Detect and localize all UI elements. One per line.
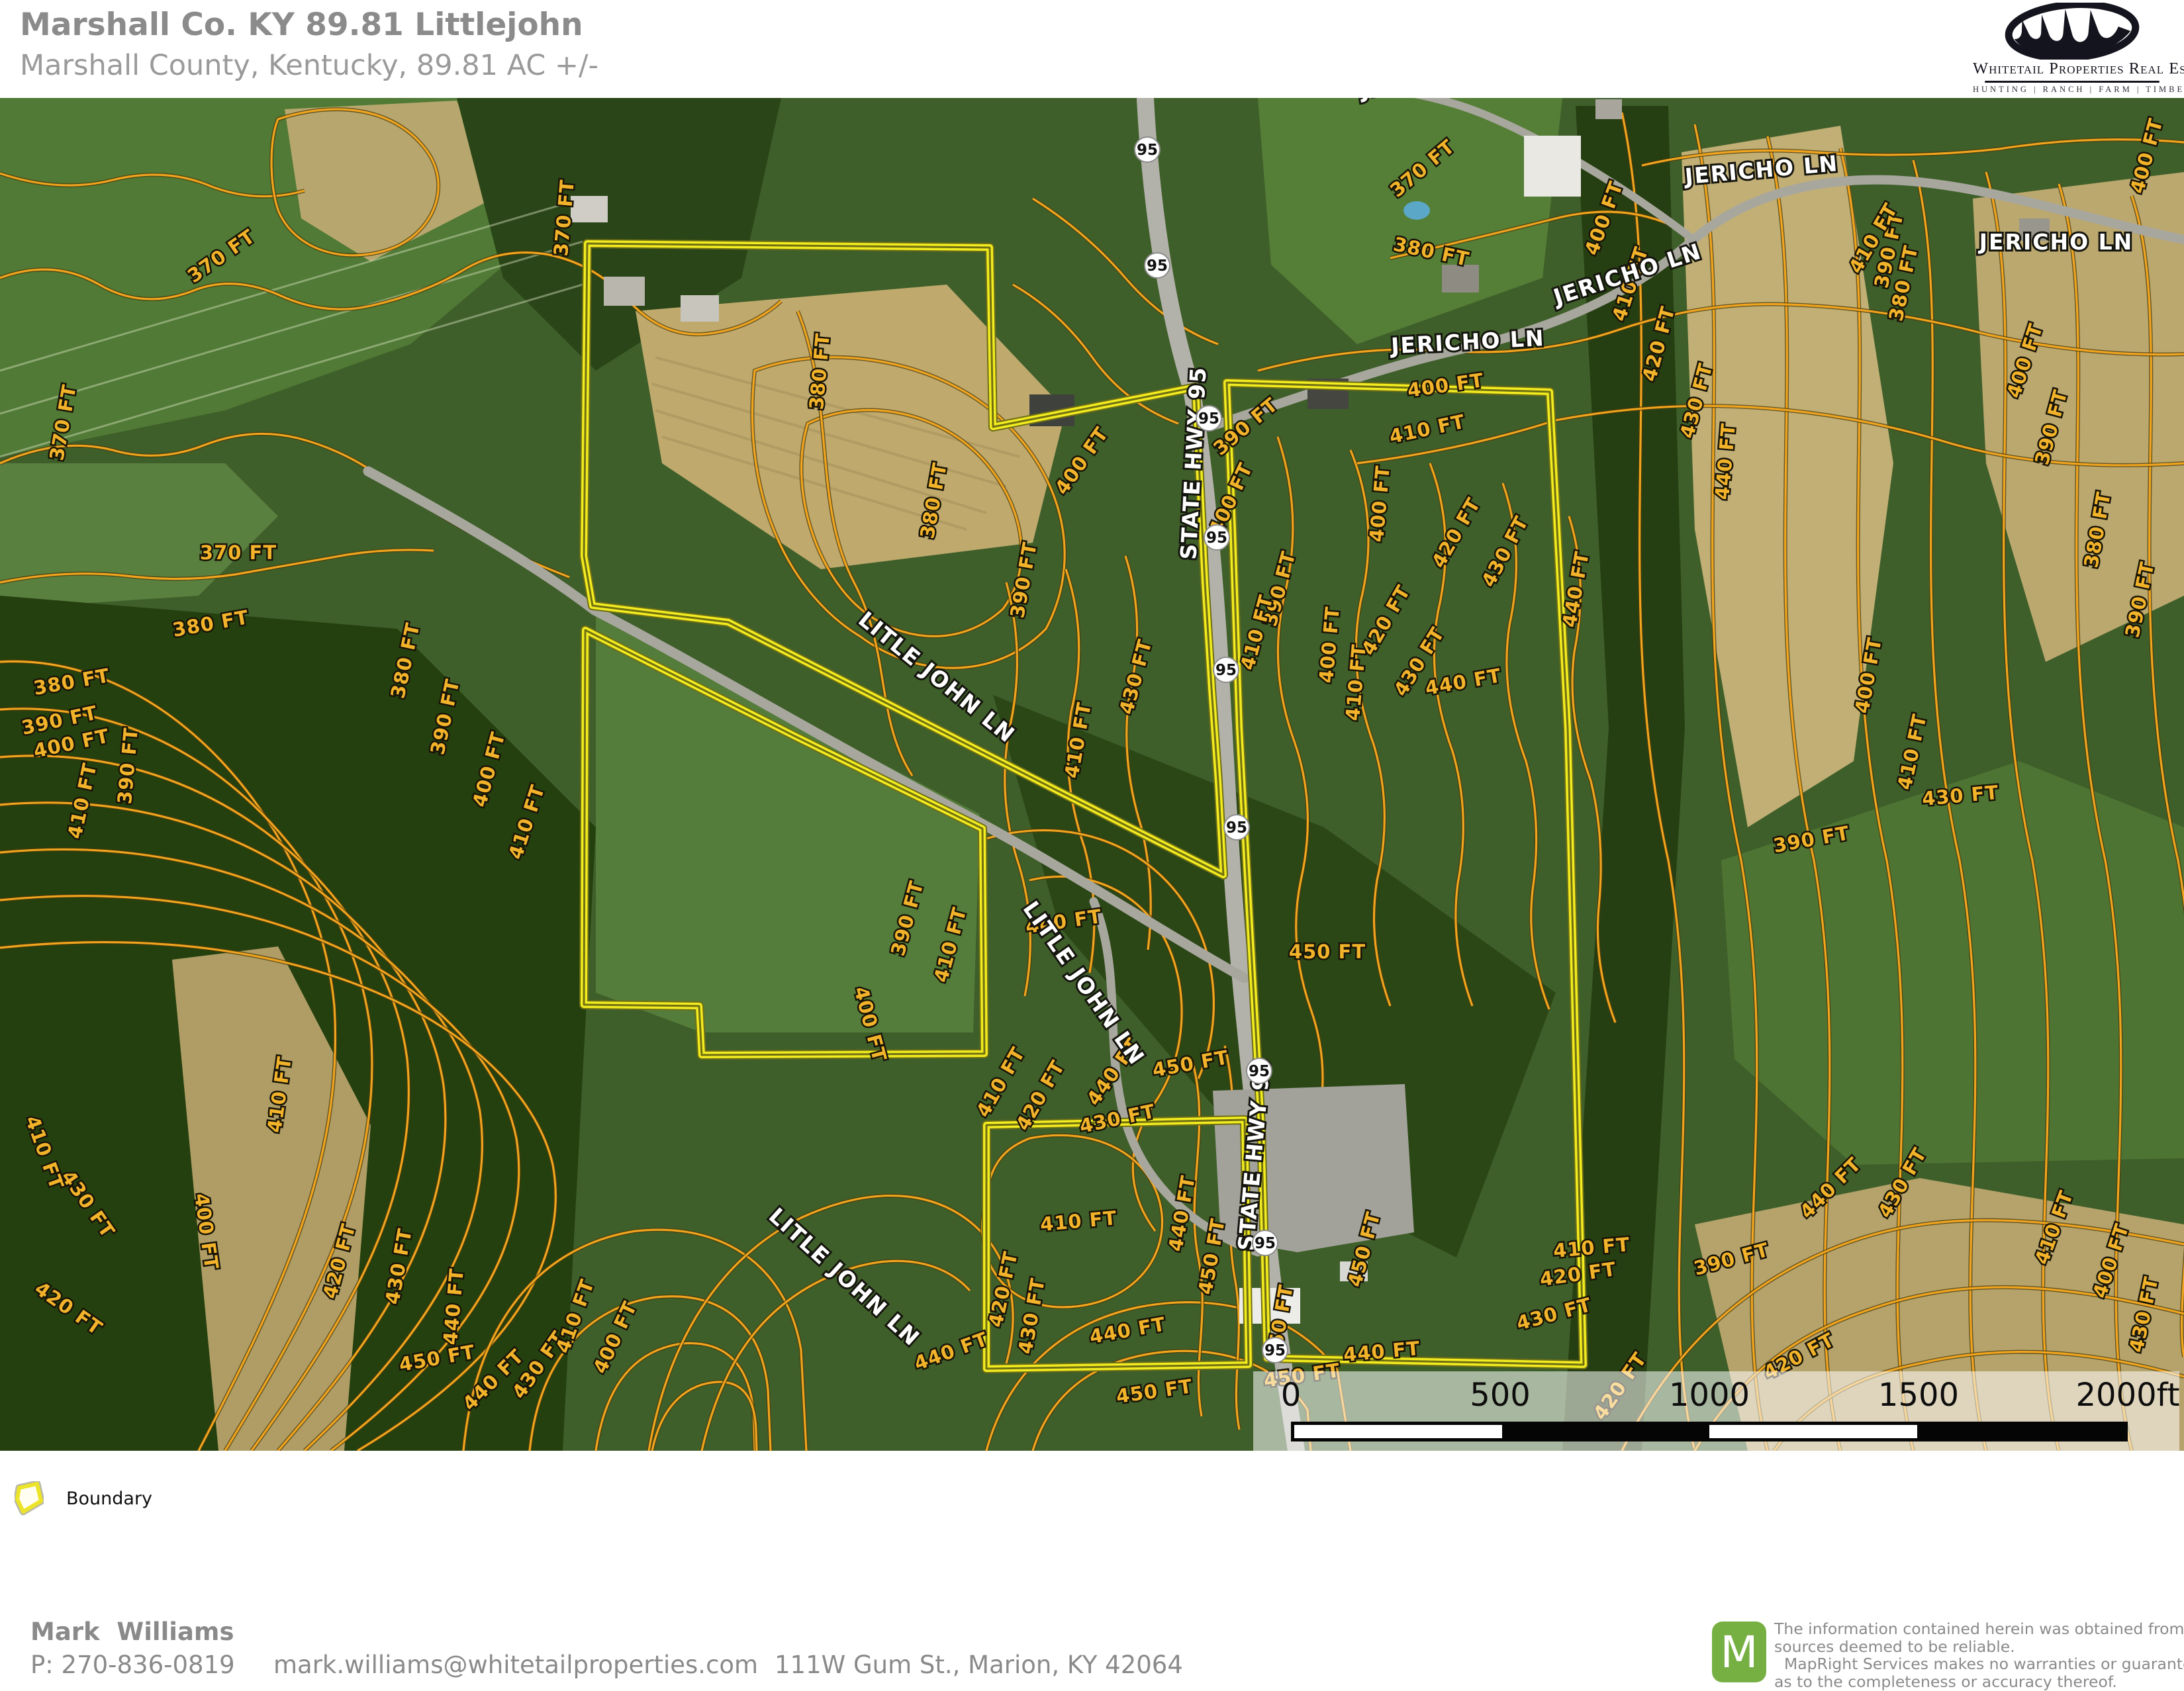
- svg-text:95: 95: [1264, 1342, 1286, 1359]
- svg-text:95: 95: [1255, 1235, 1276, 1252]
- highway-95-shield: 95: [1145, 253, 1170, 278]
- scale-tick-0: 0: [1281, 1377, 1302, 1414]
- agent-address: 111W Gum St., Marion, KY 42064: [775, 1651, 1183, 1679]
- scale-tick-500: 500: [1470, 1377, 1531, 1414]
- white-barn: [1524, 136, 1581, 197]
- svg-text:95: 95: [1198, 410, 1219, 428]
- page-subtitle: Marshall County, Kentucky, 89.81 AC +/-: [20, 49, 598, 82]
- highway-95-shield: 95: [1224, 815, 1249, 840]
- disclaimer-text: The information contained herein was obt…: [1774, 1620, 2184, 1690]
- disclaimer-line: MapRight Services makes no warranties or…: [1774, 1655, 2184, 1673]
- contour-label: 450 FT: [1289, 940, 1366, 963]
- agent-email[interactable]: mark.williams@whitetailproperties.com: [273, 1651, 758, 1679]
- road-label: JERICHO LN: [1978, 229, 2134, 255]
- contour-label: 370 FT: [200, 541, 277, 564]
- highway-95-shield: 95: [1135, 137, 1160, 162]
- legend: Boundary: [15, 1481, 152, 1516]
- mapright-logo: M: [1712, 1622, 1766, 1682]
- highway-95-shield: 95: [1262, 1338, 1288, 1363]
- agent-name: Mark Williams: [30, 1618, 234, 1646]
- disclaimer-line: The information contained herein was obt…: [1774, 1620, 2184, 1638]
- svg-text:95: 95: [1215, 662, 1237, 679]
- scale-tick-1500: 1500: [1878, 1377, 1959, 1414]
- highway-95-shield: 95: [1253, 1230, 1278, 1256]
- svg-text:95: 95: [1137, 142, 1158, 159]
- agent-phone: P: 270-836-0819: [30, 1651, 235, 1679]
- scale-bar: 0500100015002000ft: [1253, 1371, 2179, 1451]
- highway-95-shield: 95: [1204, 525, 1229, 550]
- scale-bar-segments: [1291, 1422, 2128, 1441]
- highway-95-shield: 95: [1213, 657, 1239, 682]
- brand-tagline: HUNTING | RANCH | FARM | TIMBER: [1973, 85, 2171, 95]
- disclaimer-line: as to the completeness or accuracy there…: [1774, 1673, 2184, 1691]
- svg-text:95: 95: [1147, 257, 1168, 275]
- brand-divider: [1985, 81, 2160, 83]
- antler-icon: [2003, 3, 2142, 60]
- map-canvas: 370 FT370 FT370 FT380 FT380 FT390 FT400 …: [0, 98, 2184, 1451]
- svg-text:95: 95: [1206, 529, 1227, 547]
- highway-95-shield: 95: [1247, 1058, 1272, 1083]
- whitetail-logo: Whitetail Properties Real Estate HUNTING…: [1973, 3, 2171, 95]
- scale-tick-2000ft: 2000ft: [2075, 1377, 2179, 1414]
- highway-95-shield: 95: [1196, 406, 1221, 431]
- disclaimer-line: sources deemed to be reliable.: [1774, 1638, 2184, 1656]
- svg-text:95: 95: [1226, 819, 1247, 837]
- svg-text:95: 95: [1249, 1063, 1270, 1080]
- brand-name: Whitetail Properties Real Estate: [1973, 60, 2171, 78]
- pool: [1403, 201, 1430, 220]
- boundary-legend-icon: [15, 1481, 44, 1516]
- scale-tick-1000: 1000: [1669, 1377, 1750, 1414]
- page-title: Marshall Co. KY 89.81 Littlejohn: [20, 7, 583, 43]
- legend-item-boundary: Boundary: [66, 1488, 152, 1509]
